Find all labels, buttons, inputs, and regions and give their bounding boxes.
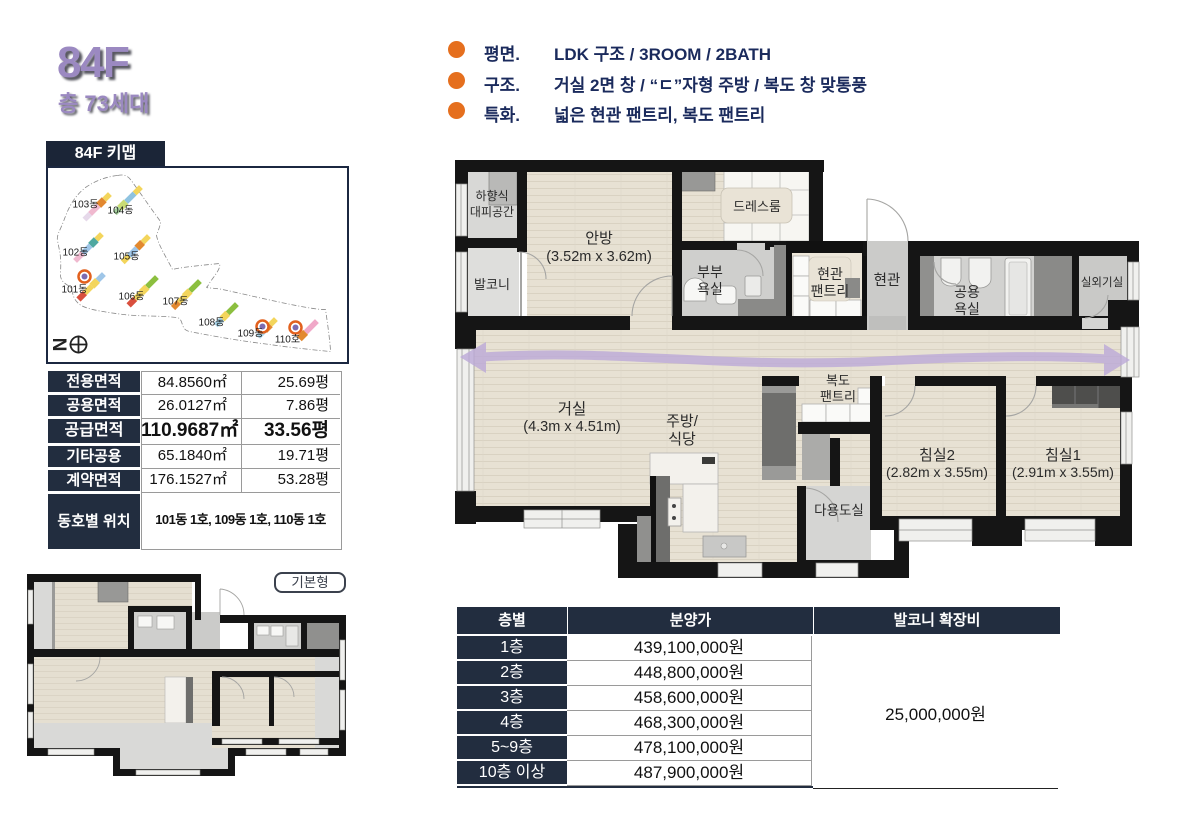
svg-text:욕실: 욕실 [954, 301, 980, 317]
svg-text:103동: 103동 [73, 199, 99, 211]
svg-text:현관: 현관 [874, 272, 901, 289]
svg-text:대피공간: 대피공간 [470, 205, 514, 219]
svg-text:(4.3m x 4.51m): (4.3m x 4.51m) [523, 419, 621, 435]
svg-text:안방: 안방 [585, 230, 613, 247]
svg-text:주방/: 주방/ [666, 413, 699, 430]
svg-text:107동: 107동 [163, 296, 189, 308]
svg-text:(2.82m x 3.55m): (2.82m x 3.55m) [886, 464, 988, 480]
svg-text:102동: 102동 [63, 247, 89, 259]
svg-text:욕실: 욕실 [697, 281, 723, 297]
svg-text:(3.52m x 3.62m): (3.52m x 3.62m) [546, 249, 652, 265]
svg-text:110호: 110호 [275, 334, 300, 346]
svg-text:하향식: 하향식 [475, 189, 508, 203]
svg-text:106동: 106동 [119, 291, 145, 303]
svg-text:N: N [51, 338, 72, 352]
svg-text:실외기실: 실외기실 [1081, 276, 1123, 289]
svg-text:108동: 108동 [199, 317, 225, 329]
svg-text:복도: 복도 [826, 373, 850, 388]
svg-text:식당: 식당 [668, 431, 696, 448]
svg-text:105동: 105동 [114, 251, 140, 263]
svg-text:팬트리: 팬트리 [811, 283, 850, 299]
svg-text:다용도실: 다용도실 [814, 503, 864, 518]
svg-text:침실2: 침실2 [919, 447, 955, 464]
svg-text:101동: 101동 [62, 284, 88, 296]
svg-text:109동: 109동 [238, 328, 264, 340]
svg-text:부부: 부부 [697, 264, 723, 280]
svg-text:104동: 104동 [108, 205, 134, 217]
svg-text:발코니: 발코니 [474, 277, 510, 292]
svg-text:침실1: 침실1 [1045, 447, 1081, 464]
svg-text:거실: 거실 [558, 400, 587, 418]
svg-text:팬트리: 팬트리 [820, 389, 856, 404]
svg-text:드레스룸: 드레스룸 [733, 199, 781, 214]
svg-text:(2.91m x 3.55m): (2.91m x 3.55m) [1012, 464, 1114, 480]
svg-text:현관: 현관 [817, 266, 843, 282]
svg-text:공용: 공용 [954, 284, 980, 300]
